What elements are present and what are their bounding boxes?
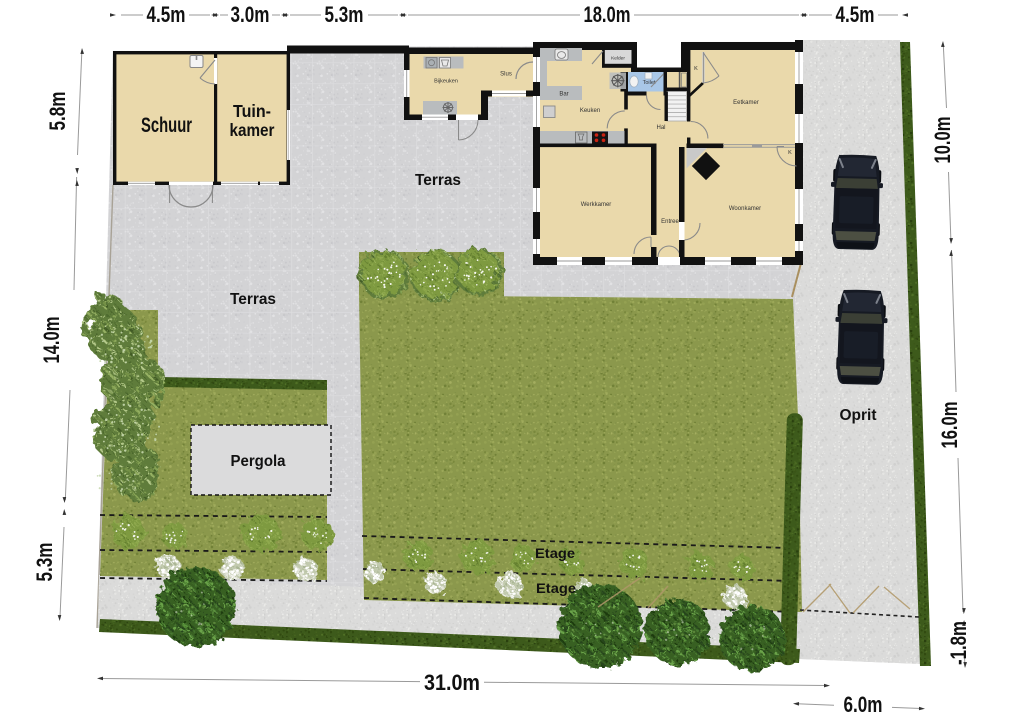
svg-text:kamer: kamer xyxy=(230,120,275,140)
svg-text:Terras: Terras xyxy=(230,291,276,308)
svg-text:Bijkeuken: Bijkeuken xyxy=(434,79,458,85)
svg-text:Slus: Slus xyxy=(500,72,512,78)
svg-text:4.5m: 4.5m xyxy=(836,2,875,27)
svg-text:Entree: Entree xyxy=(661,219,679,225)
svg-text:Toilet: Toilet xyxy=(643,80,656,86)
svg-text:Terras: Terras xyxy=(415,172,461,189)
svg-text:Bar: Bar xyxy=(559,92,568,98)
svg-text:10.0m: 10.0m xyxy=(930,117,955,164)
svg-text:5.3m: 5.3m xyxy=(32,543,57,582)
svg-text:Tuin-: Tuin- xyxy=(233,101,271,121)
svg-text:14.0m: 14.0m xyxy=(39,317,64,364)
svg-text:K: K xyxy=(694,66,698,72)
svg-text:-1.8m: -1.8m xyxy=(946,621,971,665)
svg-text:3.0m: 3.0m xyxy=(231,2,270,27)
svg-text:5.3m: 5.3m xyxy=(325,2,364,27)
svg-text:Werkkamer: Werkkamer xyxy=(581,202,612,208)
svg-text:5.8m: 5.8m xyxy=(45,92,70,131)
svg-text:Woonkamer: Woonkamer xyxy=(729,206,761,212)
svg-text:4.5m: 4.5m xyxy=(147,2,186,27)
svg-text:Hal: Hal xyxy=(656,125,665,131)
svg-text:6.0m: 6.0m xyxy=(844,692,883,717)
svg-text:Keuken: Keuken xyxy=(580,108,600,114)
svg-text:K: K xyxy=(788,150,792,156)
svg-text:Pergola: Pergola xyxy=(231,453,286,470)
svg-text:Oprit: Oprit xyxy=(840,407,877,424)
svg-text:18.0m: 18.0m xyxy=(584,2,631,27)
svg-text:Eetkamer: Eetkamer xyxy=(733,100,759,106)
svg-text:16.0m: 16.0m xyxy=(937,402,962,449)
svg-text:31.0m: 31.0m xyxy=(424,670,480,695)
svg-text:Etage: Etage xyxy=(535,545,575,561)
svg-text:Kelder: Kelder xyxy=(611,56,625,62)
svg-text:Schuur: Schuur xyxy=(141,113,192,137)
svg-text:Etage: Etage xyxy=(536,580,576,596)
